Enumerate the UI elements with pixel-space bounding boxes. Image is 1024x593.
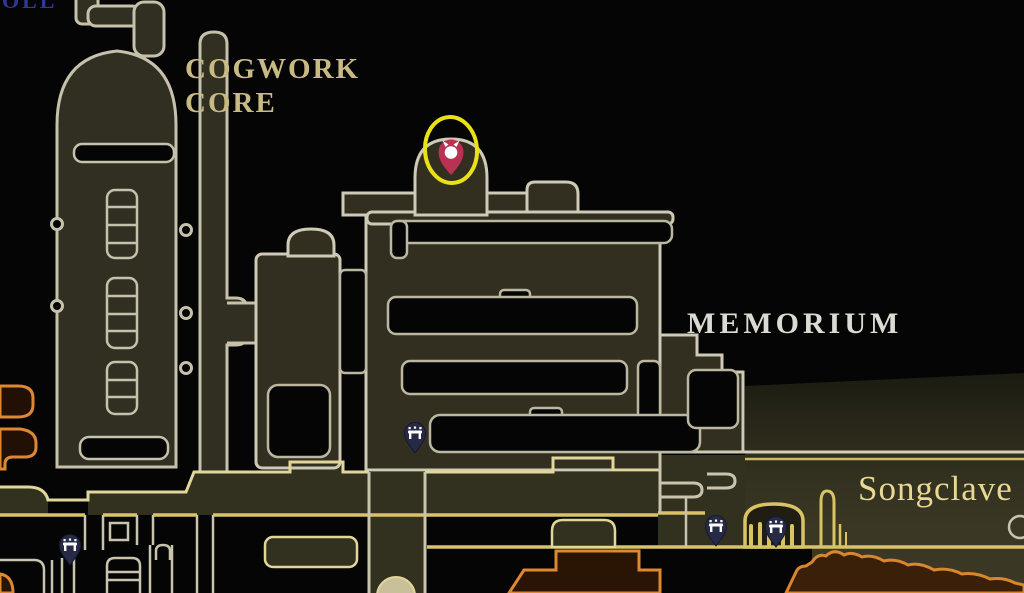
region-label-cogwork-core: COGWORKCORE [185,52,360,120]
region-label-songclave: Songclave [858,468,1013,509]
game-map-screen: COGWORKCORE MEMORIUM Songclave OLL [0,0,1024,593]
region-label-memorium: MEMORIUM [687,306,902,341]
edge-clipped-text: OLL [2,0,57,14]
pin-bug-glyph [445,146,458,159]
